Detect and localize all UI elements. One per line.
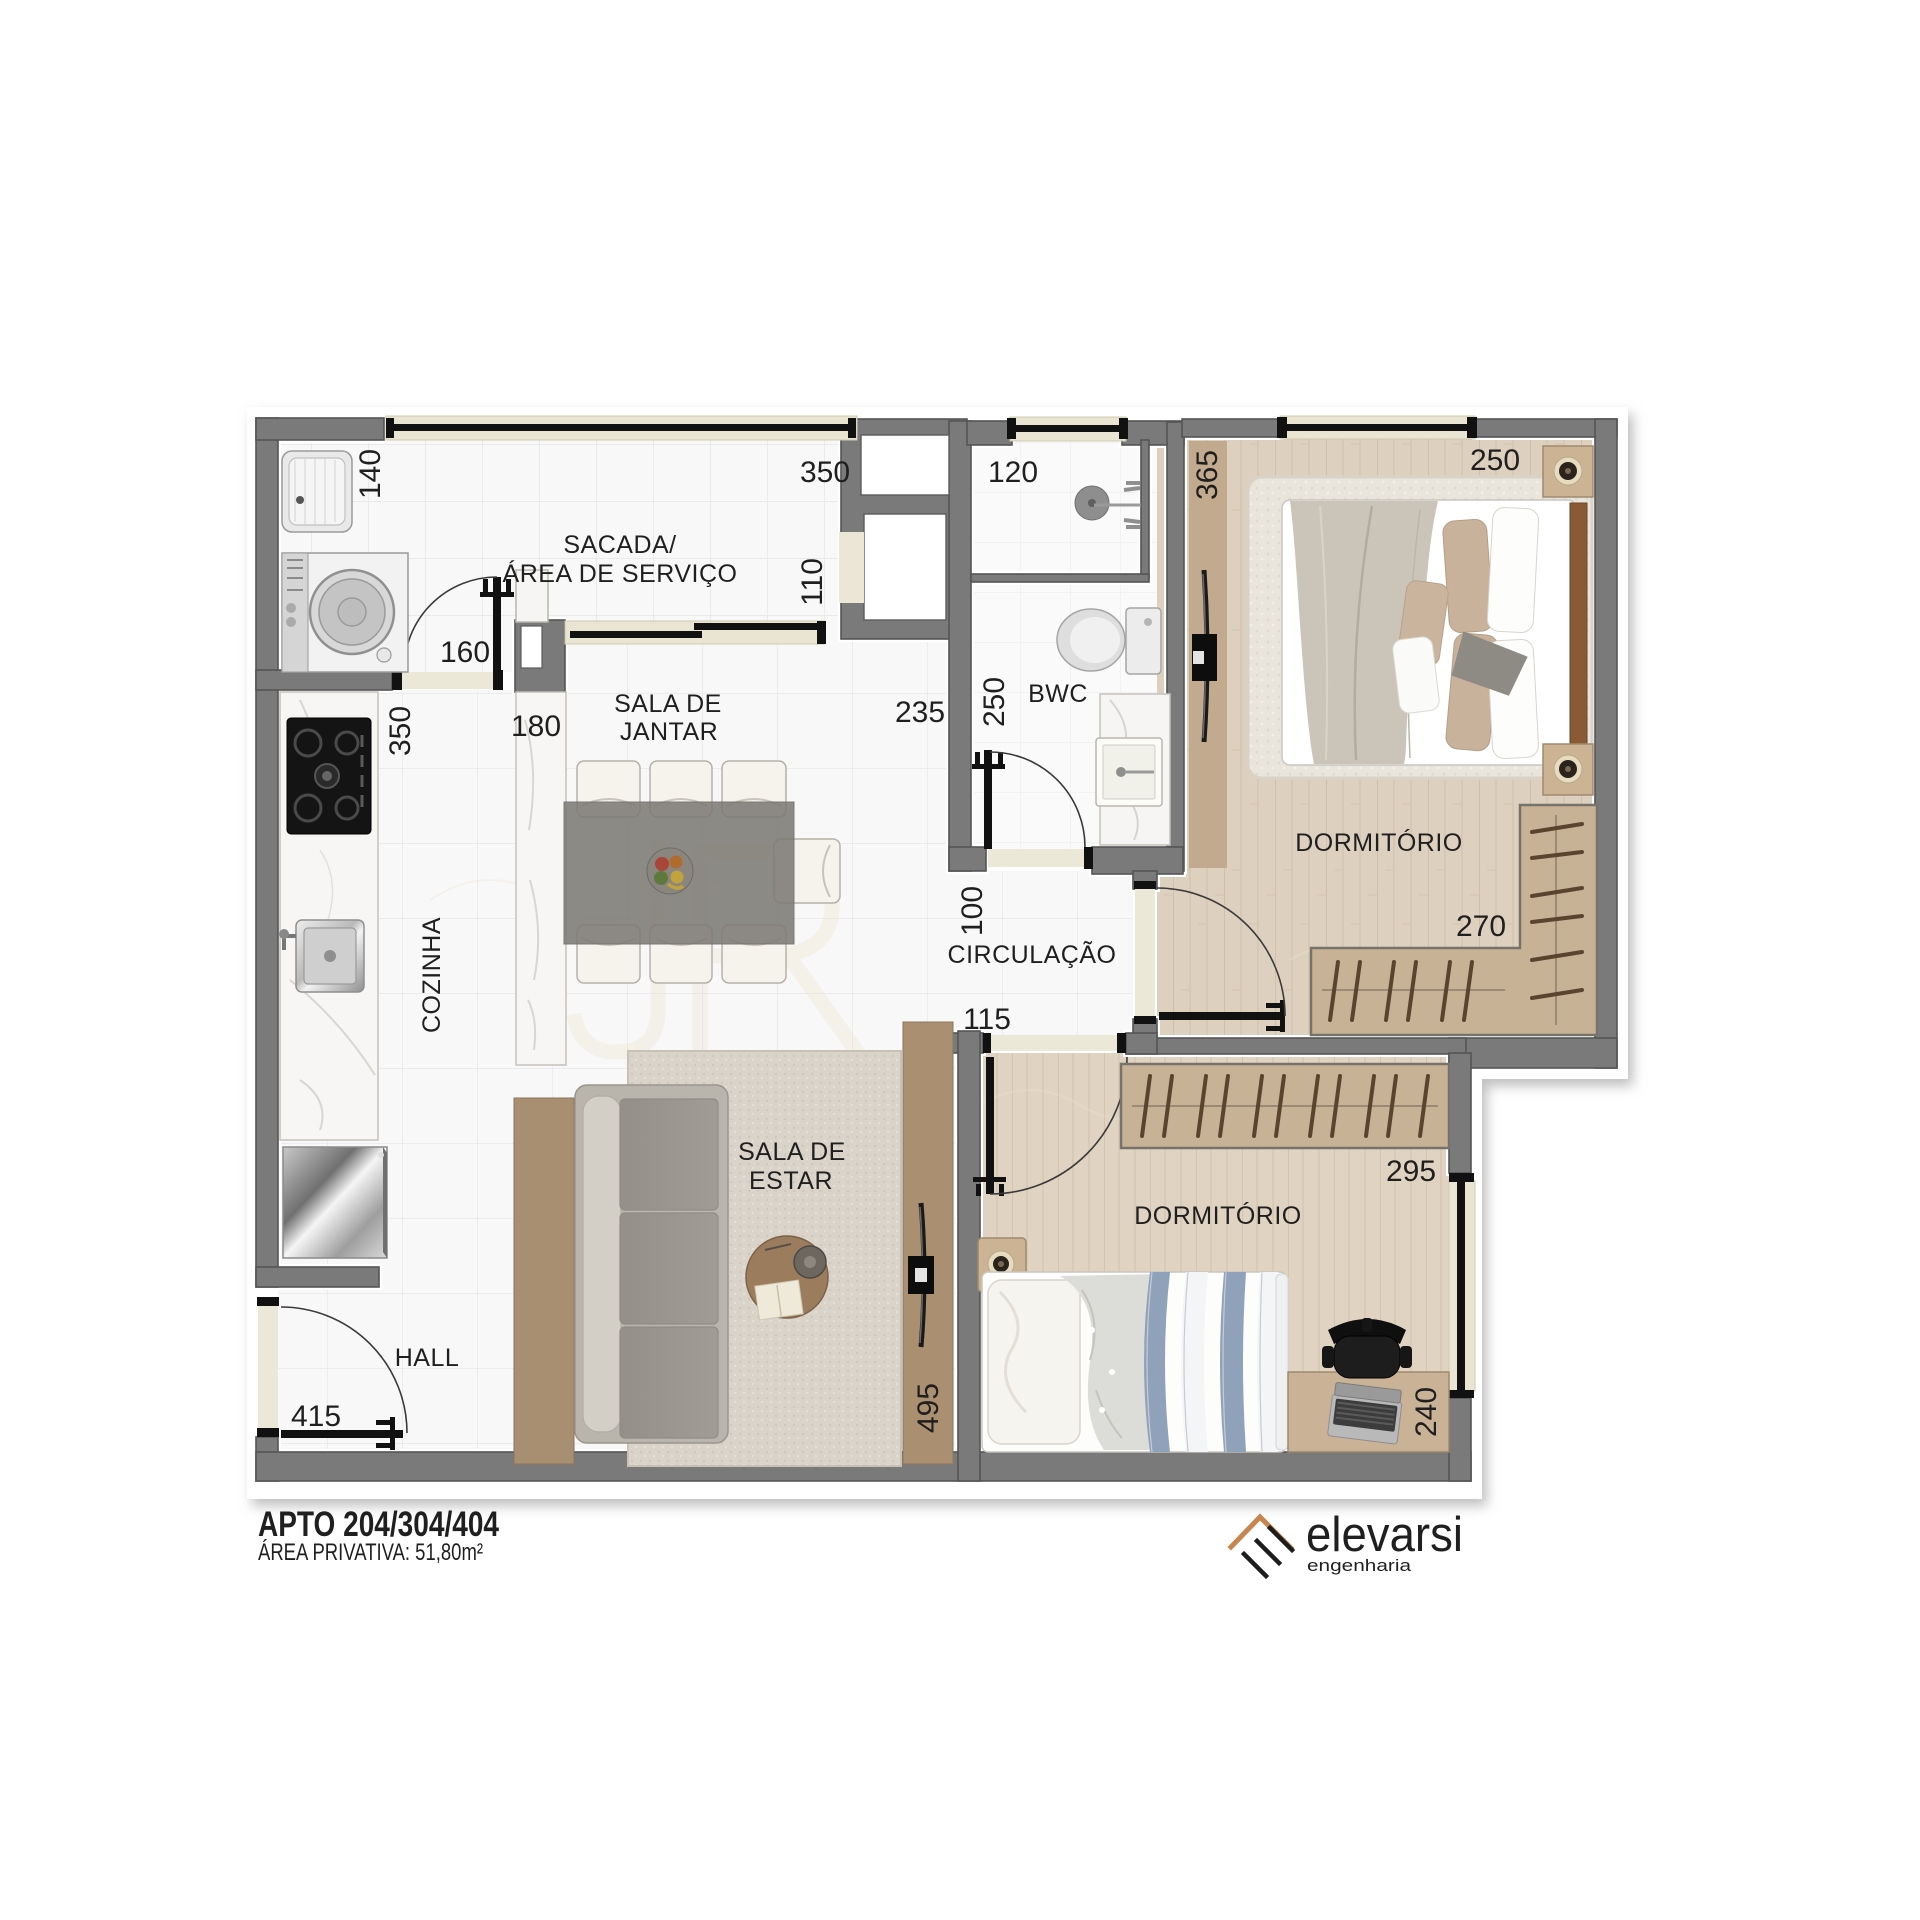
svg-text:350: 350: [800, 456, 850, 489]
svg-text:engenharia: engenharia: [1307, 1556, 1412, 1575]
svg-text:ÁREA PRIVATIVA: 51,80m²: ÁREA PRIVATIVA: 51,80m²: [258, 1539, 483, 1566]
svg-text:COZINHA: COZINHA: [418, 917, 446, 1033]
svg-text:415: 415: [291, 1400, 341, 1433]
svg-text:120: 120: [988, 456, 1038, 489]
svg-text:250: 250: [1470, 444, 1520, 477]
svg-text:240: 240: [1410, 1387, 1443, 1437]
svg-text:160: 160: [440, 636, 490, 669]
svg-text:115: 115: [963, 1003, 1011, 1036]
svg-text:350: 350: [384, 706, 417, 756]
svg-text:495: 495: [912, 1383, 945, 1433]
svg-text:elevarsi: elevarsi: [1306, 1508, 1463, 1562]
svg-text:180: 180: [511, 710, 561, 743]
svg-text:ESTAR: ESTAR: [749, 1167, 833, 1195]
svg-text:100: 100: [956, 886, 989, 936]
svg-text:250: 250: [978, 677, 1011, 727]
svg-text:SALA DE: SALA DE: [738, 1138, 846, 1166]
svg-text:CIRCULAÇÃO: CIRCULAÇÃO: [948, 940, 1117, 969]
svg-text:DORMITÓRIO: DORMITÓRIO: [1134, 1201, 1302, 1230]
svg-text:BWC: BWC: [1028, 680, 1088, 708]
svg-text:295: 295: [1386, 1155, 1436, 1188]
svg-text:110: 110: [796, 558, 829, 606]
svg-text:ÁREA DE SERVIÇO: ÁREA DE SERVIÇO: [503, 559, 738, 588]
svg-text:235: 235: [895, 696, 945, 729]
svg-text:270: 270: [1456, 910, 1506, 943]
svg-text:HALL: HALL: [395, 1344, 460, 1372]
svg-text:140: 140: [354, 449, 387, 499]
svg-text:SALA DE: SALA DE: [614, 690, 722, 718]
svg-text:DORMITÓRIO: DORMITÓRIO: [1295, 828, 1463, 857]
svg-text:SACADA/: SACADA/: [563, 531, 676, 559]
svg-text:365: 365: [1191, 450, 1224, 500]
svg-text:JANTAR: JANTAR: [620, 718, 718, 746]
